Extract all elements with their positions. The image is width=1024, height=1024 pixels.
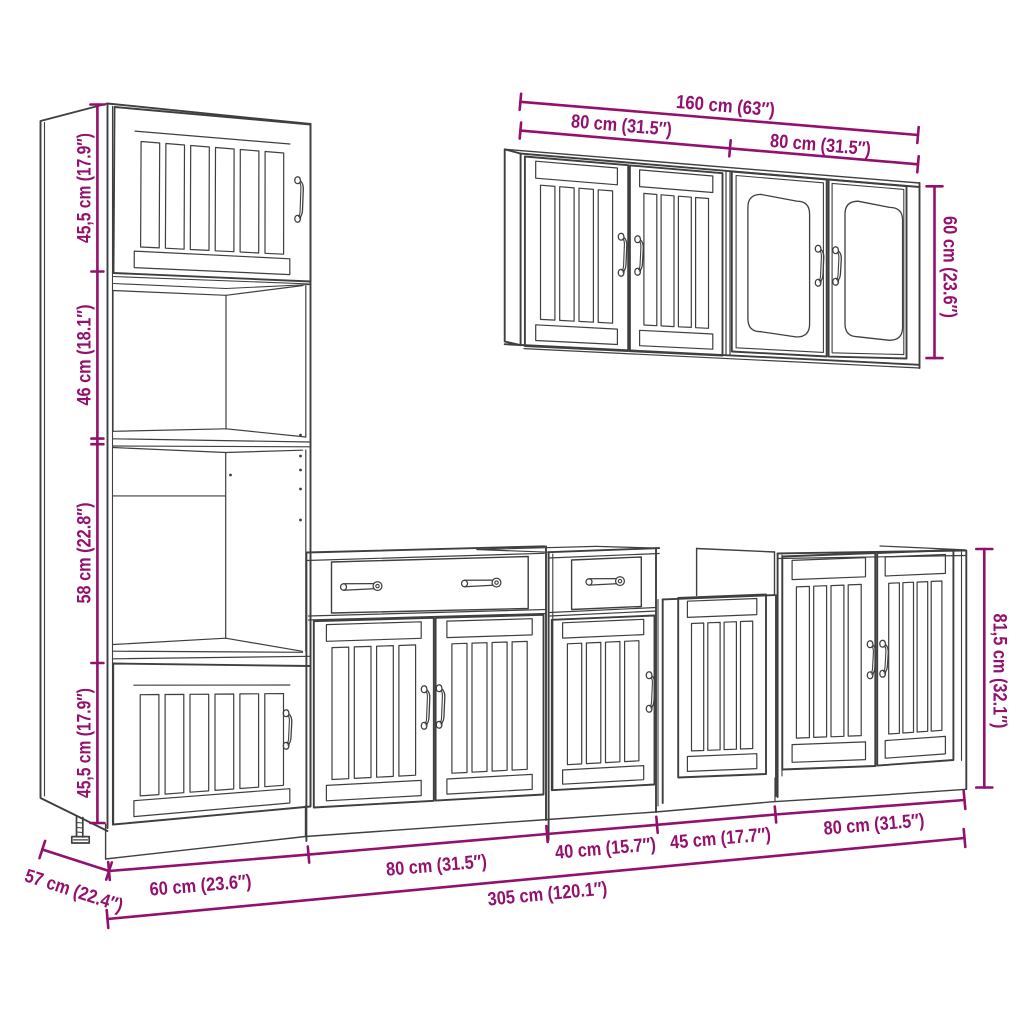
svg-text:81,5 cm (32.1″): 81,5 cm (32.1″): [989, 614, 1010, 729]
svg-text:60 cm (23.6″): 60 cm (23.6″): [939, 216, 960, 318]
svg-text:58 cm (22.8″): 58 cm (22.8″): [75, 503, 96, 604]
svg-text:46 cm (18.1″): 46 cm (18.1″): [75, 305, 96, 406]
svg-text:45,5 cm (17.9″): 45,5 cm (17.9″): [75, 688, 96, 798]
svg-text:45,5 cm (17.9″): 45,5 cm (17.9″): [75, 133, 96, 243]
